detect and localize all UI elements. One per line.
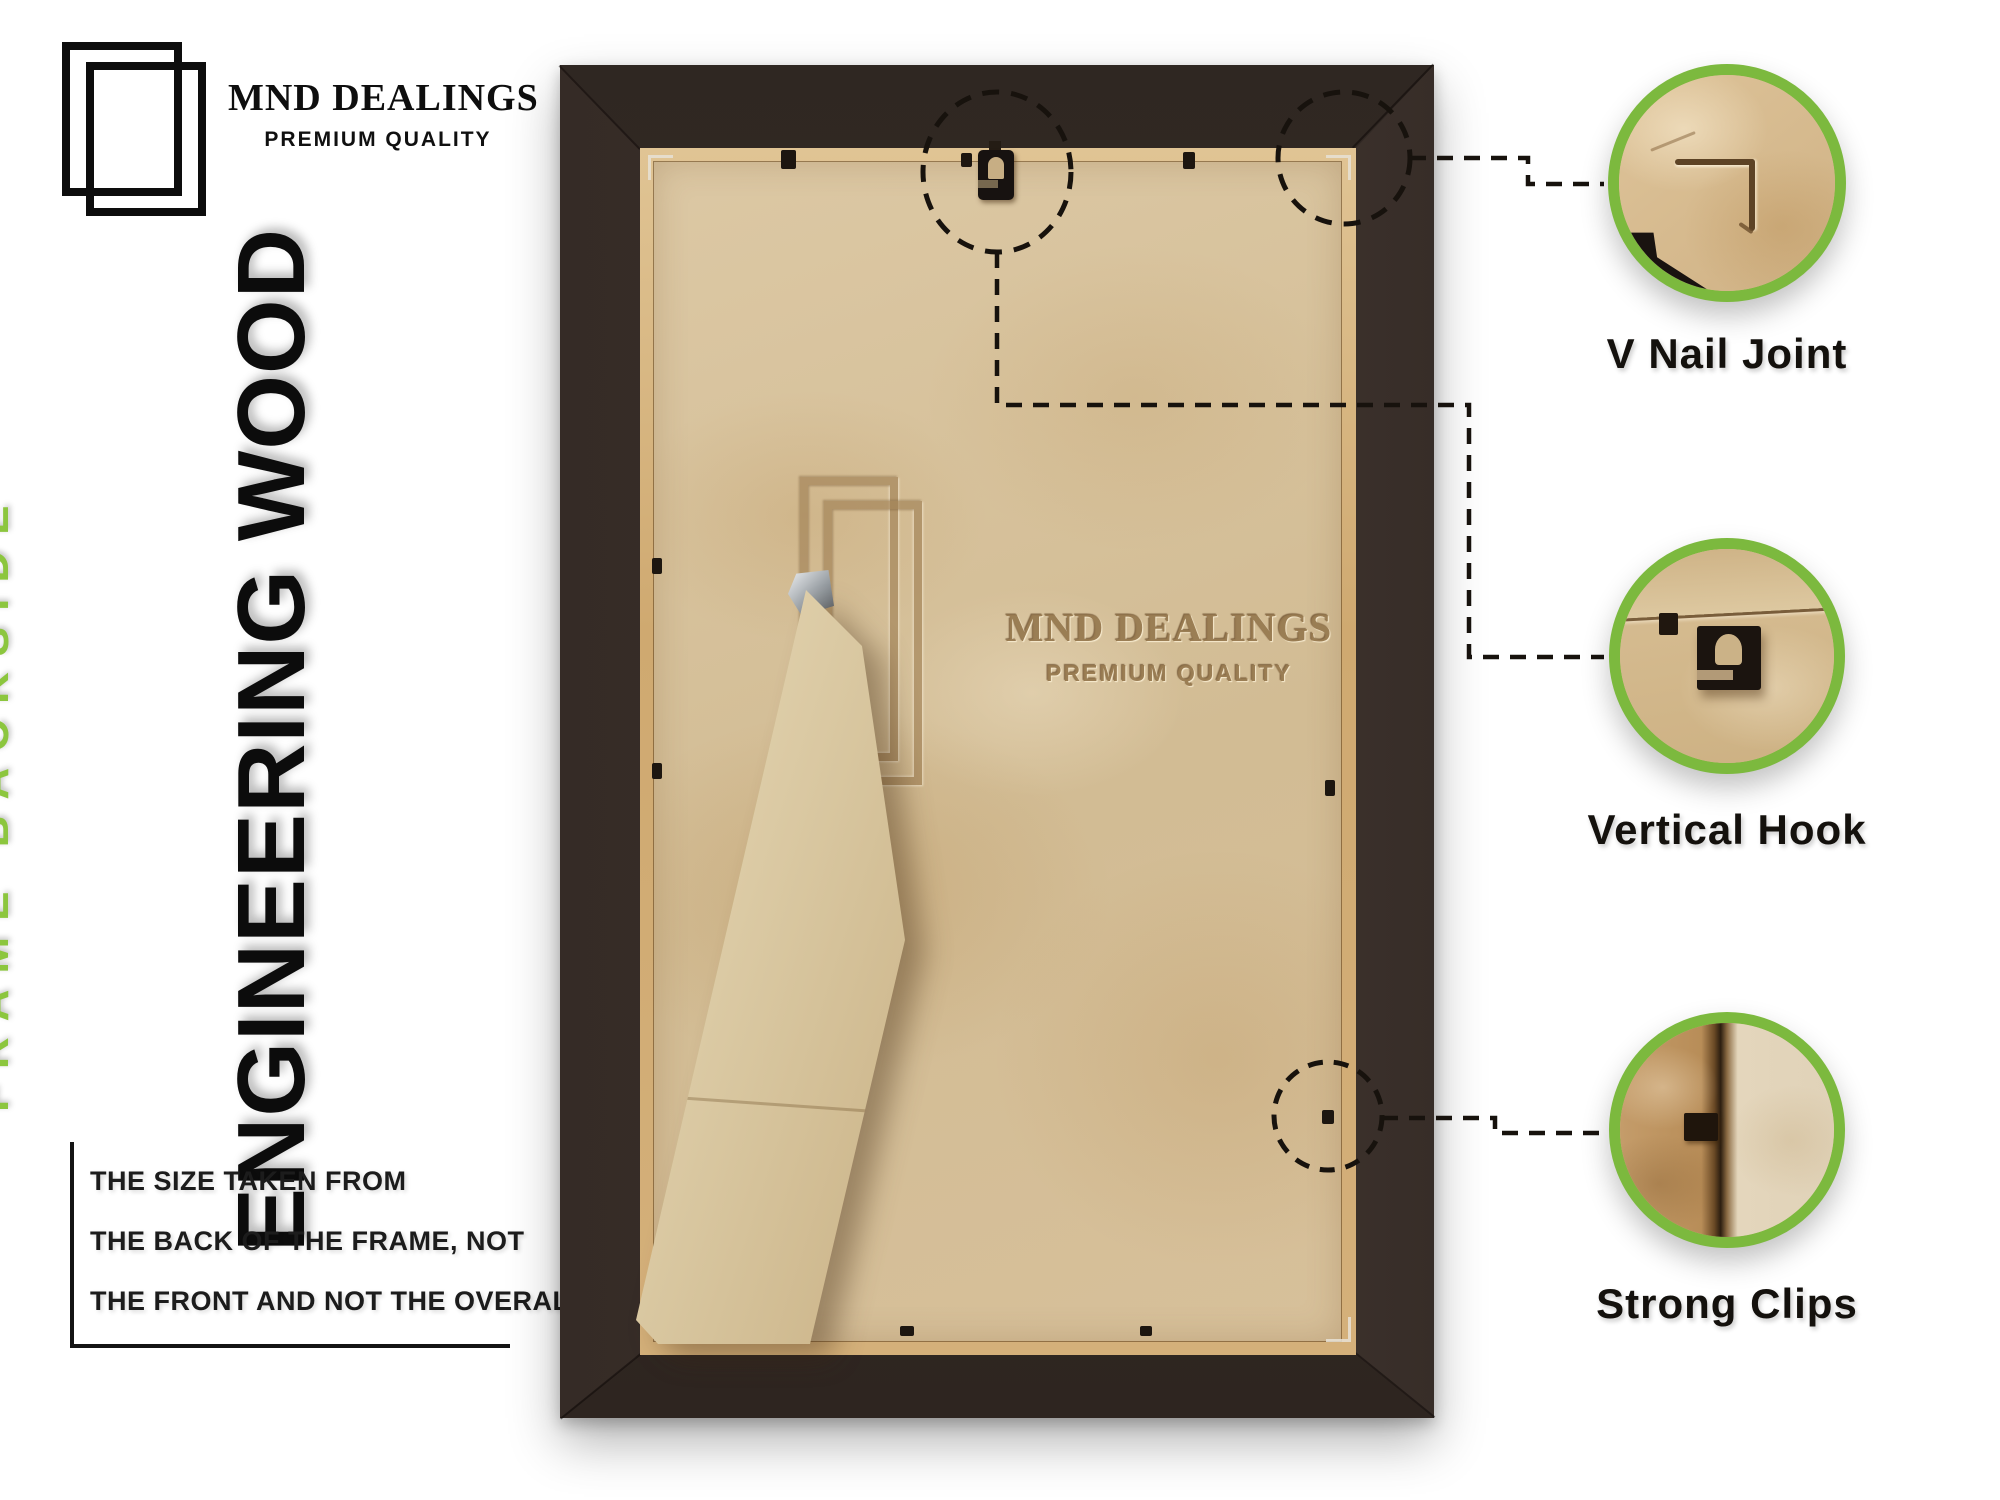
product-infographic: MND DEALINGS PREMIUM QUALITY FRAME BACKS… [0, 0, 2000, 1500]
strong-clip [1322, 1110, 1334, 1124]
clip-closeup [1684, 1113, 1718, 1141]
wood-strip [1609, 538, 1845, 620]
frame-photo: MND DEALINGS PREMIUM QUALITY [560, 65, 1434, 1418]
brand-name: MND DEALINGS [228, 76, 548, 120]
frame-backside-label: FRAME BACKSIDE [0, 295, 28, 1112]
connector-v-nail [1410, 158, 1604, 184]
note-corner-line-horizontal [70, 1344, 510, 1348]
clip [1140, 1326, 1152, 1336]
easel-stand-leg [630, 588, 920, 1350]
clip [1659, 613, 1678, 634]
v-nail-groove [1749, 159, 1755, 230]
corner-bracket [1326, 1317, 1351, 1342]
embossed-brand-tagline: PREMIUM QUALITY [939, 660, 1399, 687]
hook-notch [978, 180, 998, 188]
v-nail-joint-photo [1619, 75, 1835, 291]
corner-bracket [648, 155, 673, 180]
callout-label-vertical-hook: Vertical Hook [1560, 806, 1894, 854]
corner-bracket [1326, 155, 1351, 180]
hook-hole [988, 157, 1004, 179]
callout-circle-vertical-hook [1609, 538, 1845, 774]
frame-rect-icon [86, 62, 206, 216]
callout-circle-v-nail-joint [1608, 64, 1846, 302]
callout-label-v-nail-joint: V Nail Joint [1560, 330, 1894, 378]
size-note-line: THE BACK OF THE FRAME, NOT [90, 1226, 524, 1257]
hook-hole [1715, 634, 1742, 665]
hook-closeup [1697, 626, 1761, 690]
vertical-hook-hardware [978, 150, 1014, 200]
engineering-wood-label: ENGINEERING WOOD [212, 208, 332, 1252]
clip [1325, 780, 1335, 796]
embossed-brand-name: MND DEALINGS [939, 604, 1399, 651]
wood-texture [1620, 1023, 1834, 1237]
callout-label-strong-clips: Strong Clips [1560, 1280, 1894, 1328]
callout-circle-strong-clips [1609, 1012, 1845, 1248]
strong-clips-photo [1620, 1023, 1834, 1237]
hook-slot [1697, 670, 1733, 680]
clip [652, 558, 662, 574]
note-corner-line-vertical [70, 1142, 74, 1347]
easel-stand-leg-board [630, 588, 920, 1350]
clip [1183, 152, 1195, 169]
clip [961, 153, 972, 167]
frame-corner-shadow [1619, 226, 1710, 291]
vertical-hook-photo [1620, 549, 1834, 763]
leg-edge-highlight [630, 588, 920, 1350]
v-nail-groove [1675, 159, 1755, 165]
wood-scratch [1650, 131, 1695, 152]
brand-tagline: PREMIUM QUALITY [228, 128, 528, 152]
clip [781, 150, 796, 169]
size-note-line: THE SIZE TAKEN FROM [90, 1166, 407, 1197]
